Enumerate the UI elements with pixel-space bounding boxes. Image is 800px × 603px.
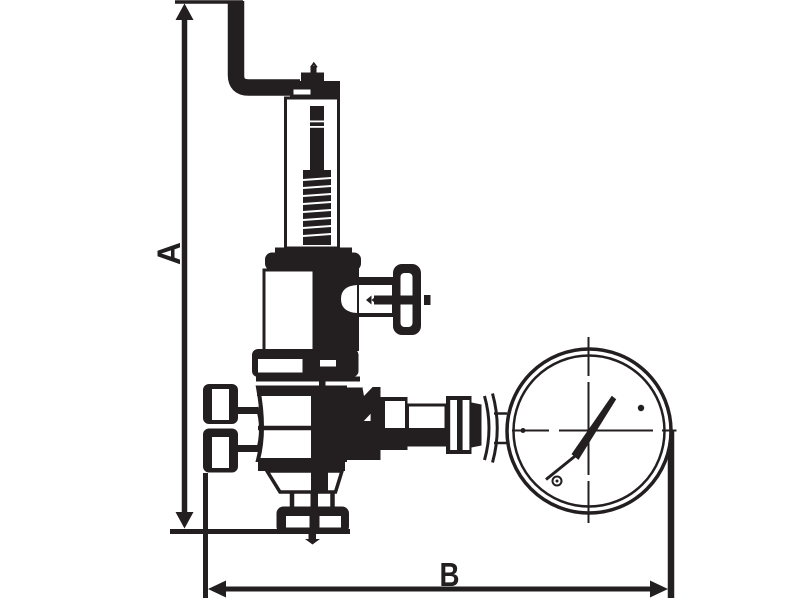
svg-text:B: B bbox=[440, 556, 460, 593]
svg-text:A: A bbox=[151, 242, 187, 265]
